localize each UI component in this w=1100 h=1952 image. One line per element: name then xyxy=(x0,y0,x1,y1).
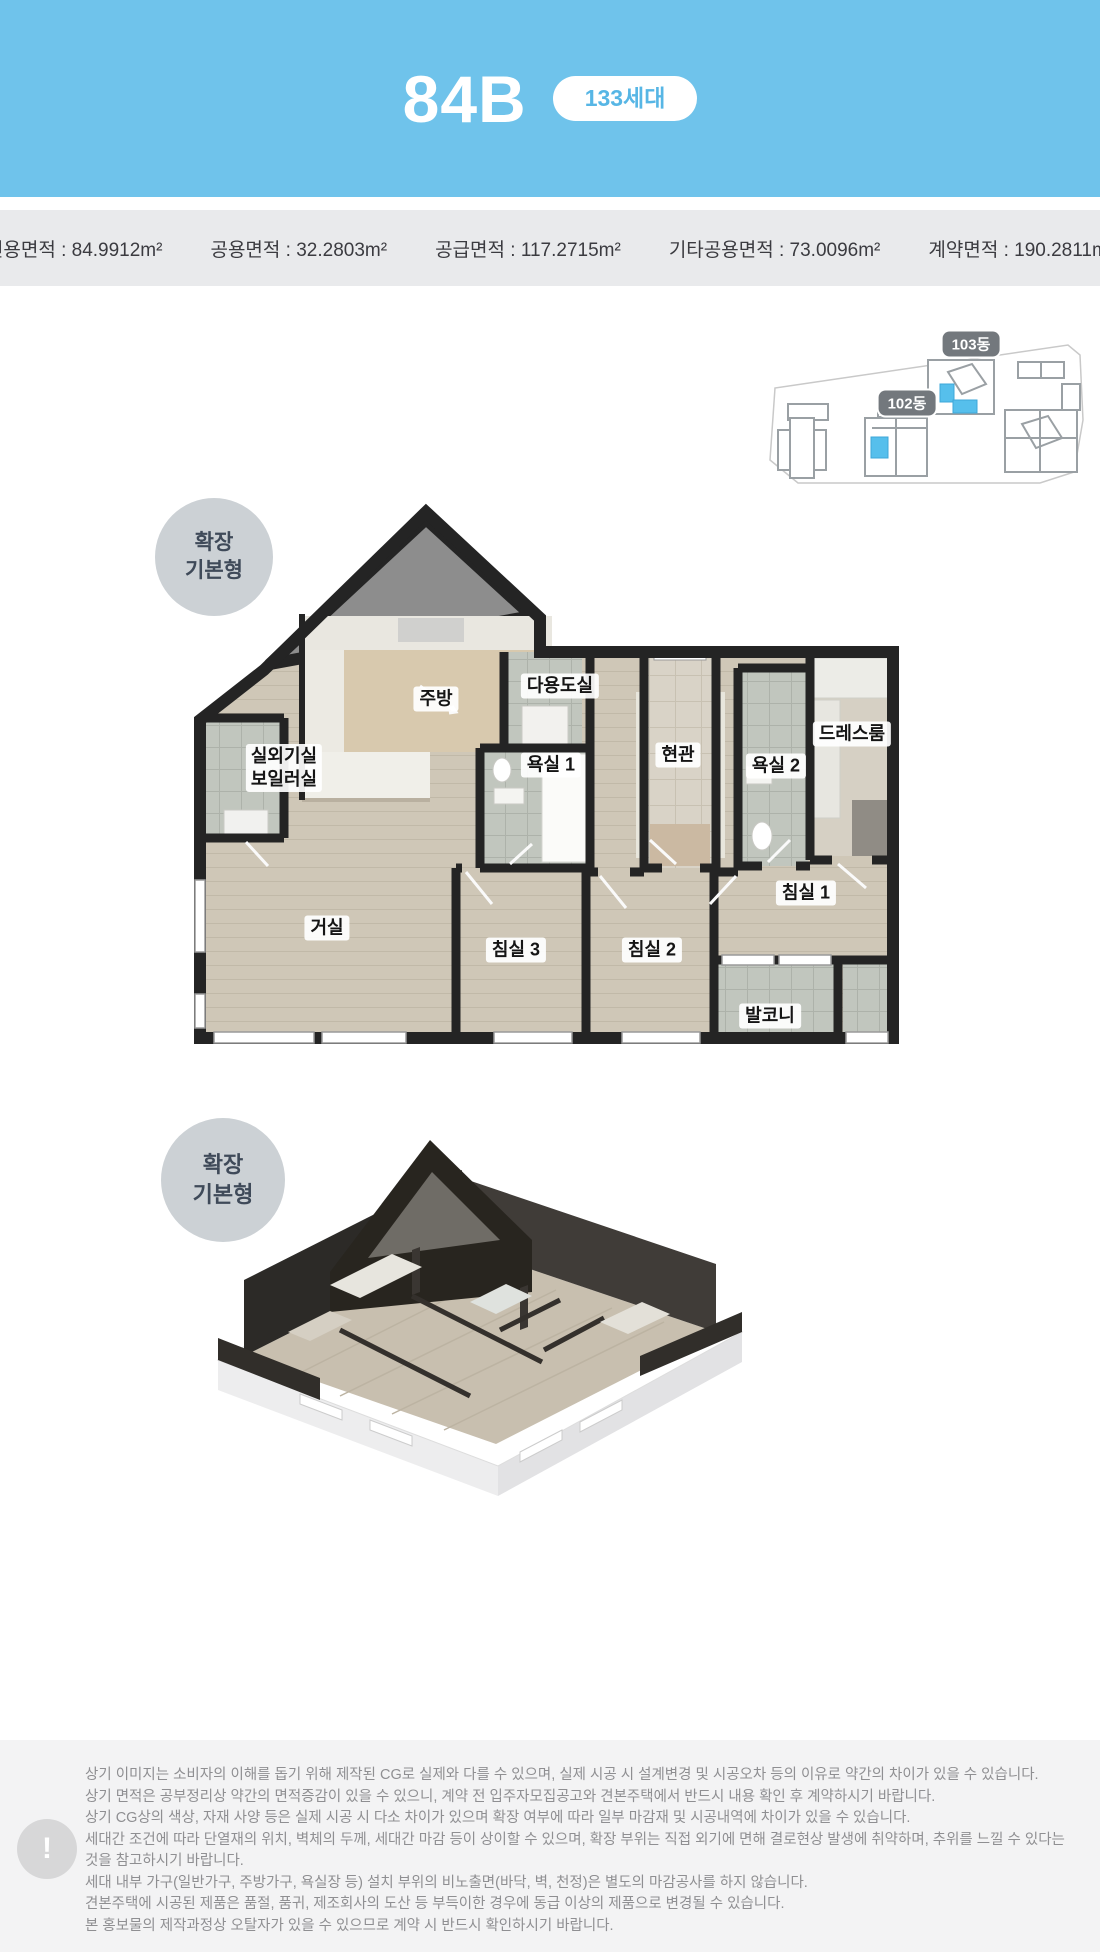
room-label-bedroom2: 침실 2 xyxy=(622,938,682,963)
site-buildings xyxy=(778,360,1080,478)
household-count-badge: 133세대 xyxy=(553,76,698,121)
disclaimer-line: 세대간 조건에 따라 단열재의 위치, 벽체의 두께, 세대간 마감 등이 상이… xyxy=(85,1830,1075,1873)
area-exclusive: 전용면적 : 84.9912m² xyxy=(0,235,162,262)
room-label-boiler: 보일러실 xyxy=(251,768,317,791)
room-label-living: 거실 xyxy=(304,916,349,941)
area-info-bar: 전용면적 : 84.9912m² 공용면적 : 32.2803m² 공급면적 :… xyxy=(0,210,1100,286)
page-header: 84B 133세대 xyxy=(0,0,1100,197)
unit-type-title: 84B xyxy=(403,66,527,132)
room-label-bedroom1: 침실 1 xyxy=(776,881,836,906)
room-label-dressroom: 드레스룸 xyxy=(813,722,891,747)
room-label-outdoor-unit: 실외기실 xyxy=(251,745,317,768)
area-other-common: 기타공용면적 : 73.0096m² xyxy=(669,235,881,262)
exclamation-icon: ! xyxy=(17,1819,77,1879)
disclaimer-text-block: 상기 이미지는 소비자의 이해를 돕기 위해 제작된 CG로 실제와 다를 수 … xyxy=(85,1765,1075,1937)
disclaimer-line: 상기 이미지는 소비자의 이해를 돕기 위해 제작된 CG로 실제와 다를 수 … xyxy=(85,1765,1075,1787)
disclaimer-line: 세대 내부 가구(일반가구, 주방가구, 욕실장 등) 설치 부위의 비노출면(… xyxy=(85,1873,1075,1895)
floor-plan-3d-render xyxy=(140,1110,780,1520)
room-label-entrance: 현관 xyxy=(655,743,700,768)
disclaimer-line: 견본주택에 시공된 제품은 품절, 품귀, 제조회사의 도산 등 부득이한 경우… xyxy=(85,1894,1075,1916)
room-label-outdoor-boiler: 실외기실 보일러실 xyxy=(246,744,322,792)
room-label-balcony: 발코니 xyxy=(739,1004,801,1029)
building-102-badge: 102동 xyxy=(879,391,936,416)
area-contract: 계약면적 : 190.2811m² xyxy=(928,235,1100,262)
room-label-bedroom3: 침실 3 xyxy=(486,938,546,963)
disclaimer-line: 상기 CG상의 색상, 자재 사양 등은 실제 시공 시 다소 차이가 있으며 … xyxy=(85,1808,1075,1830)
room-label-bath1: 욕실 1 xyxy=(521,753,581,778)
building-103-badge: 103동 xyxy=(943,332,1000,357)
disclaimer-line: 상기 면적은 공부정리상 약간의 면적증감이 있을 수 있으니, 계약 전 입주… xyxy=(85,1787,1075,1809)
disclaimer-line: 본 홍보물의 제작과정상 오탈자가 있을 수 있으므로 계약 시 반드시 확인하… xyxy=(85,1916,1075,1938)
room-label-kitchen: 주방 xyxy=(413,687,458,712)
area-supply: 공급면적 : 117.2715m² xyxy=(435,235,621,262)
room-label-utility: 다용도실 xyxy=(521,674,599,699)
floorplan-page: 84B 133세대 전용면적 : 84.9912m² 공용면적 : 32.280… xyxy=(0,0,1100,1952)
area-common: 공용면적 : 32.2803m² xyxy=(210,235,387,262)
footer-disclaimer: ! 상기 이미지는 소비자의 이해를 돕기 위해 제작된 CG로 실제와 다를 … xyxy=(0,1740,1100,1952)
room-label-bath2: 욕실 2 xyxy=(746,754,806,779)
